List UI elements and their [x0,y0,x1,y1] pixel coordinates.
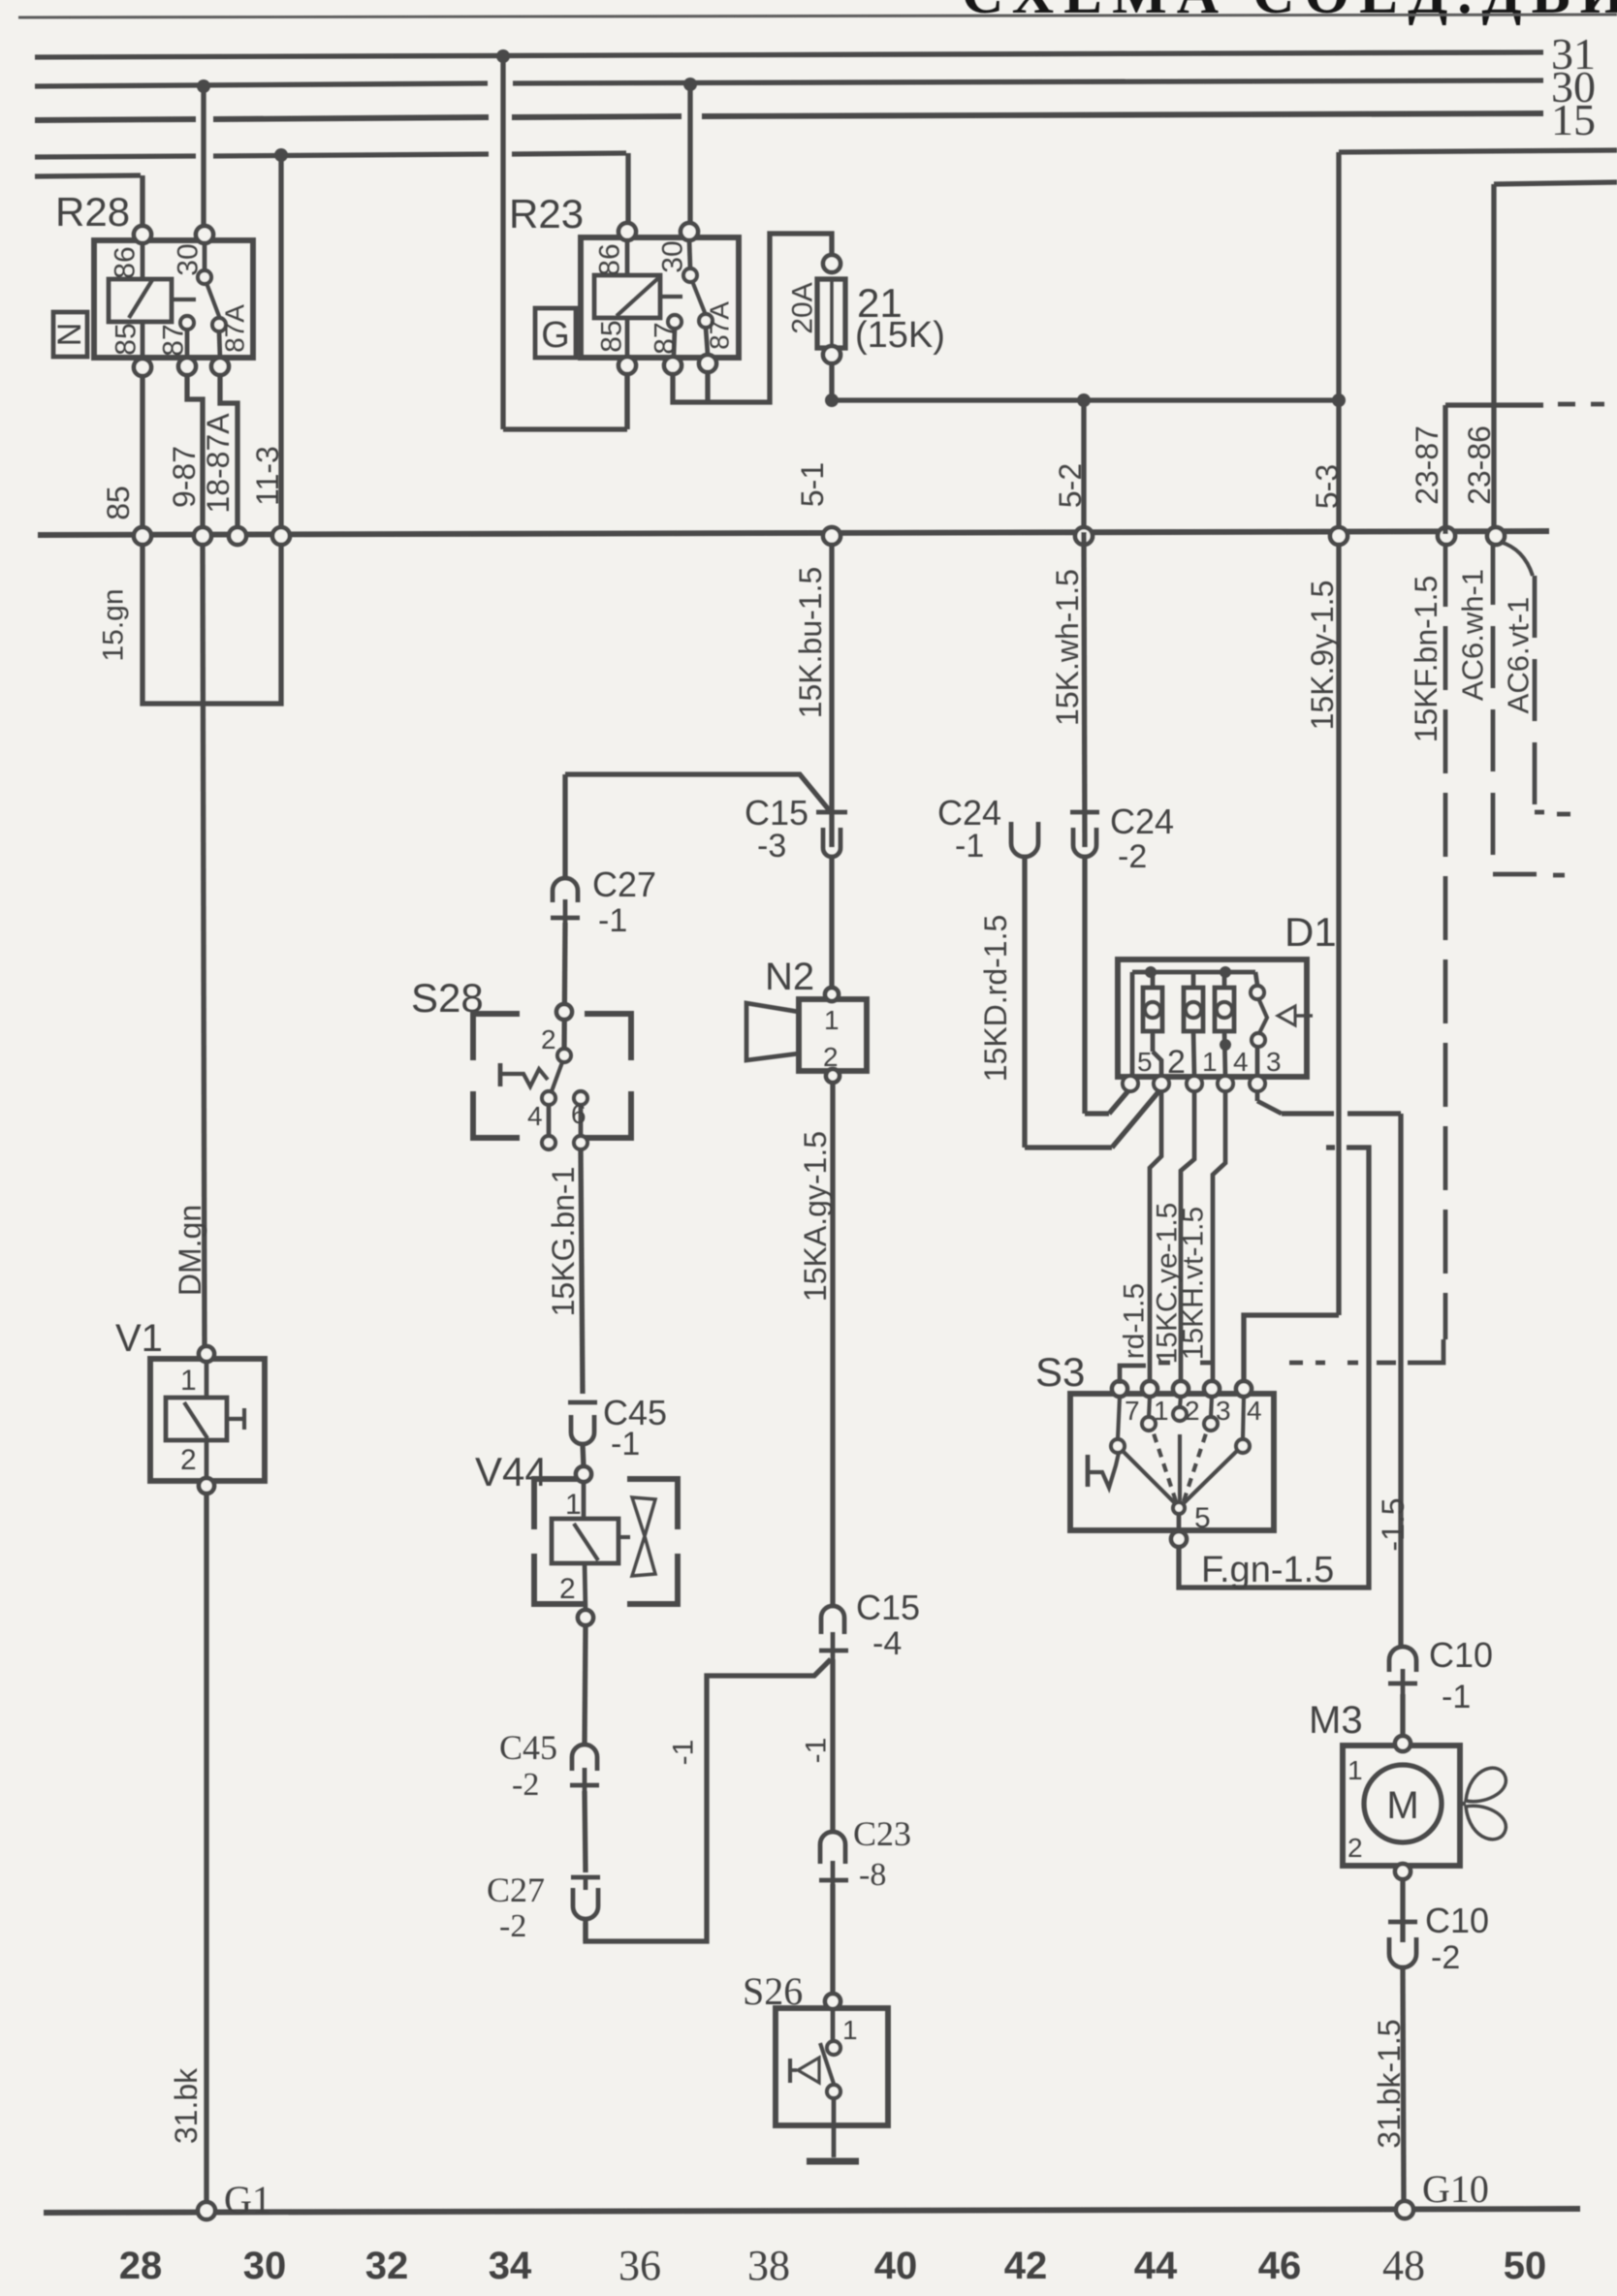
svg-text:(15K): (15K) [855,315,945,356]
svg-text:15: 15 [1551,95,1596,144]
svg-text:-2: -2 [1118,838,1147,875]
svg-text:38: 38 [747,2242,790,2289]
svg-text:СХЕМА СОЕД.ДВИГАТ: СХЕМА СОЕД.ДВИГАТ [962,0,1617,25]
svg-text:N: N [51,323,88,347]
svg-text:1: 1 [180,1365,197,1397]
svg-text:31.bk-1.5: 31.bk-1.5 [1372,2019,1407,2148]
svg-text:C24: C24 [937,793,1001,833]
svg-text:15.gn: 15.gn [98,588,130,661]
svg-text:C15: C15 [856,1588,920,1627]
svg-text:G10: G10 [1422,2167,1489,2211]
svg-text:C15: C15 [745,793,808,833]
svg-text:50: 50 [1504,2245,1547,2287]
svg-text:30: 30 [657,240,689,272]
svg-text:5-1: 5-1 [795,462,830,507]
svg-text:23-86: 23-86 [1462,425,1497,505]
svg-text:6: 6 [571,1099,587,1129]
svg-text:F.gn-1.5: F.gn-1.5 [1201,1550,1334,1590]
svg-text:46: 46 [1258,2245,1302,2287]
svg-text:48: 48 [1382,2242,1425,2289]
svg-text:-4: -4 [872,1625,902,1662]
svg-text:2: 2 [541,1024,556,1054]
svg-text:5: 5 [1194,1502,1211,1534]
svg-text:34: 34 [489,2245,532,2287]
svg-text:18-87A: 18-87A [201,413,236,514]
svg-text:1: 1 [565,1489,582,1521]
svg-text:4: 4 [527,1101,543,1131]
svg-text:20A: 20A [787,282,819,333]
svg-text:-1: -1 [955,828,984,865]
svg-text:15KA.gy-1.5: 15KA.gy-1.5 [798,1131,833,1302]
svg-text:30: 30 [173,243,205,275]
svg-text:C23: C23 [853,1814,911,1853]
svg-text:87A: 87A [220,304,250,353]
svg-text:28: 28 [119,2245,163,2287]
svg-text:2: 2 [1167,1044,1186,1081]
svg-text:5-2: 5-2 [1053,463,1088,508]
svg-text:-1: -1 [668,1740,700,1766]
svg-text:2: 2 [1347,1833,1363,1863]
svg-text:30: 30 [243,2245,287,2287]
svg-text:5: 5 [1137,1047,1153,1077]
svg-text:-2: -2 [499,1908,526,1944]
svg-text:-2: -2 [1431,1939,1460,1976]
svg-text:36: 36 [618,2242,661,2289]
svg-text:85: 85 [101,486,136,520]
svg-text:86: 86 [110,246,142,278]
svg-text:-1: -1 [801,1738,833,1764]
svg-text:7: 7 [1125,1396,1140,1426]
svg-text:85: 85 [111,323,143,355]
svg-text:4: 4 [1233,1047,1249,1077]
svg-text:87A: 87A [705,301,735,350]
svg-text:86: 86 [594,243,626,275]
svg-text:-3: -3 [757,828,786,865]
svg-text:85: 85 [596,320,628,352]
svg-text:1: 1 [1202,1047,1218,1077]
svg-text:AC6.vt-1: AC6.vt-1 [1502,597,1536,714]
svg-text:2: 2 [180,1444,197,1476]
svg-text:-1: -1 [1442,1679,1471,1715]
svg-text:2: 2 [559,1573,576,1605]
svg-text:15KF.bn-1.5: 15KF.bn-1.5 [1409,576,1443,743]
svg-text:15K.bu-1.5: 15K.bu-1.5 [793,567,828,719]
svg-text:1: 1 [1347,1755,1363,1785]
svg-text:40: 40 [874,2245,918,2287]
svg-text:C24: C24 [1110,802,1174,841]
svg-text:R23: R23 [509,191,584,236]
svg-text:N2: N2 [765,956,814,998]
svg-text:11-3: 11-3 [250,446,285,506]
svg-text:G: G [541,315,570,356]
svg-text:-8: -8 [859,1857,886,1893]
svg-text:15KG.bn-1: 15KG.bn-1 [546,1167,581,1317]
svg-text:5-3: 5-3 [1310,464,1345,509]
svg-text:32: 32 [365,2245,409,2287]
svg-text:C45: C45 [499,1728,557,1767]
svg-text:15K.wh-1.5: 15K.wh-1.5 [1050,569,1085,726]
svg-text:G1: G1 [224,2178,271,2221]
svg-text:-1: -1 [598,902,627,939]
svg-text:D1: D1 [1284,909,1337,955]
svg-text:9-87: 9-87 [167,446,202,508]
svg-text:15KD.rd-1.5: 15KD.rd-1.5 [978,915,1013,1083]
svg-text:44: 44 [1134,2245,1178,2287]
svg-text:87: 87 [158,324,190,356]
svg-text:C10: C10 [1425,1901,1489,1940]
svg-text:-1.5: -1.5 [1376,1497,1411,1551]
svg-text:C10: C10 [1429,1635,1493,1675]
svg-text:15K.9y-1.5: 15K.9y-1.5 [1305,581,1340,731]
svg-text:M3: M3 [1309,1699,1363,1742]
svg-text:AC6.wh-1: AC6.wh-1 [1456,569,1490,701]
svg-text:-1: -1 [611,1426,640,1463]
svg-text:4: 4 [1247,1396,1262,1426]
svg-text:15KH.vt-1.5: 15KH.vt-1.5 [1178,1207,1210,1360]
svg-text:R28: R28 [55,189,130,235]
svg-text:3: 3 [1266,1047,1282,1077]
svg-text:V1: V1 [115,1317,163,1360]
svg-text:1: 1 [824,1005,840,1035]
svg-text:1: 1 [842,2015,858,2045]
svg-text:31.bk: 31.bk [169,2067,204,2144]
svg-text:rd-1.5: rd-1.5 [1119,1283,1151,1359]
svg-text:M: M [1386,1784,1418,1827]
svg-text:-2: -2 [512,1767,539,1803]
svg-text:C27: C27 [487,1871,545,1909]
svg-text:DM.gn: DM.gn [173,1205,207,1296]
svg-text:S3: S3 [1035,1349,1085,1395]
svg-text:87: 87 [650,322,682,354]
svg-text:23-87: 23-87 [1410,425,1444,505]
svg-text:42: 42 [1004,2245,1048,2287]
svg-text:C27: C27 [592,865,656,904]
